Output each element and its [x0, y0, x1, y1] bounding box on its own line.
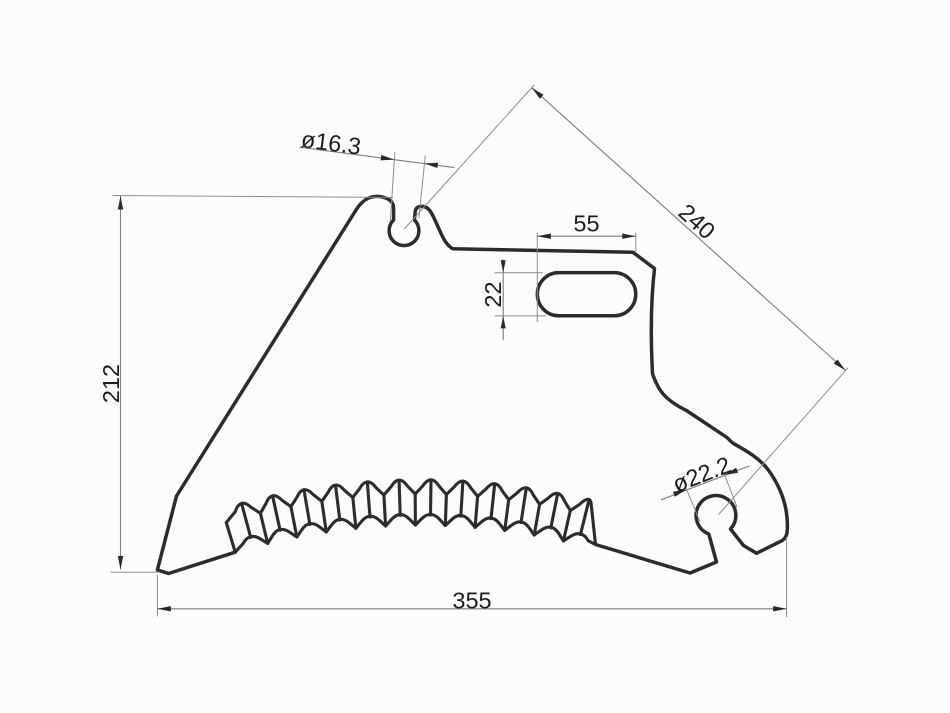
- svg-text:355: 355: [452, 588, 491, 614]
- svg-text:55: 55: [573, 211, 599, 237]
- svg-text:212: 212: [98, 364, 124, 403]
- svg-text:22: 22: [480, 281, 506, 307]
